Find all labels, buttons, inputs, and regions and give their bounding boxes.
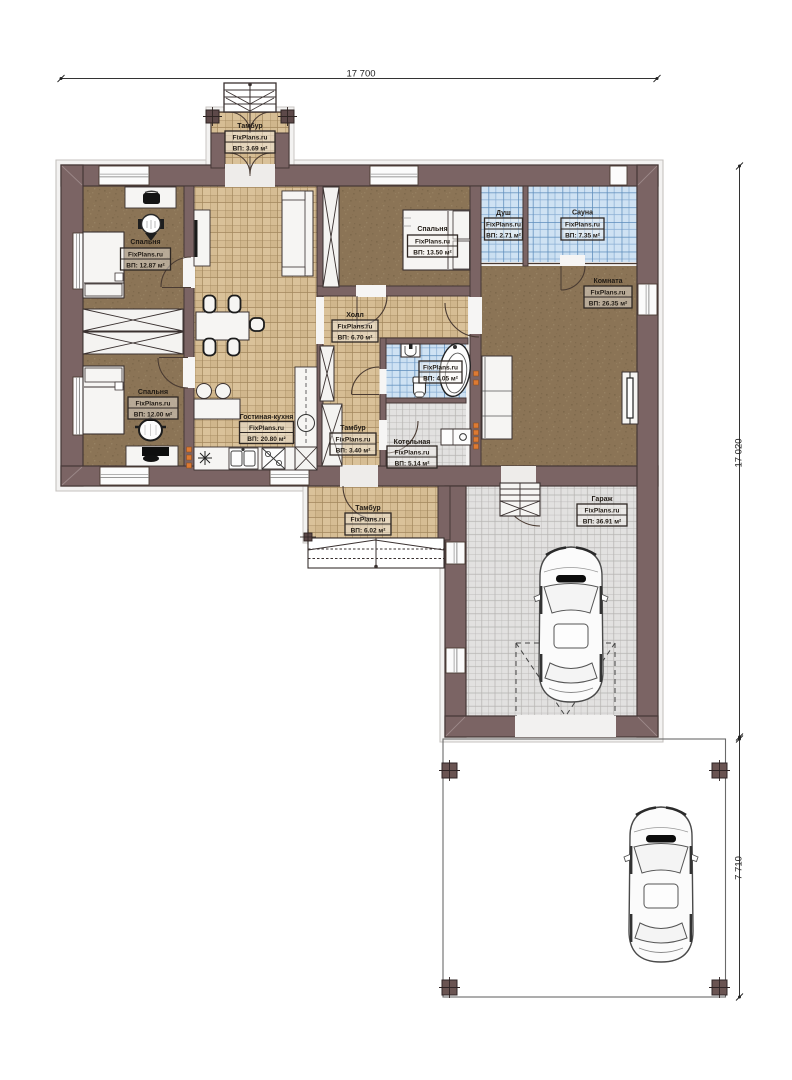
svg-text:ВП: 3.40 м²: ВП: 3.40 м²	[336, 448, 372, 455]
svg-text:Гостиная-кухня: Гостиная-кухня	[240, 414, 294, 421]
svg-text:Спальня: Спальня	[130, 239, 160, 246]
svg-text:ВП: 26.35 м²: ВП: 26.35 м²	[589, 301, 628, 308]
svg-text:Тамбур: Тамбур	[237, 122, 262, 130]
svg-text:ВП: 36.91 м²: ВП: 36.91 м²	[583, 519, 622, 526]
svg-text:FixPlans.ru: FixPlans.ru	[486, 222, 521, 229]
svg-text:Комната: Комната	[593, 278, 622, 285]
svg-text:FixPlans.ru: FixPlans.ru	[337, 324, 372, 331]
svg-text:Тамбур: Тамбур	[355, 504, 380, 512]
svg-text:ВП: 12.87 м²: ВП: 12.87 м²	[126, 263, 165, 270]
svg-text:FixPlans.ru: FixPlans.ru	[335, 437, 370, 444]
svg-text:FixPlans.ru: FixPlans.ru	[249, 425, 284, 432]
svg-text:ВП: 7.35 м²: ВП: 7.35 м²	[565, 233, 601, 240]
svg-text:ВП: 6.02 м²: ВП: 6.02 м²	[351, 528, 387, 535]
svg-text:ВП: 13.50 м²: ВП: 13.50 м²	[413, 250, 452, 257]
svg-text:ВП: 6.70 м²: ВП: 6.70 м²	[338, 335, 374, 342]
svg-text:Сауна: Сауна	[572, 210, 593, 217]
svg-text:17 020: 17 020	[734, 438, 745, 467]
svg-text:7 710: 7 710	[734, 856, 745, 880]
svg-text:Спальня: Спальня	[138, 389, 168, 396]
svg-text:ВП: 12.00 м²: ВП: 12.00 м²	[134, 412, 173, 419]
svg-text:ВП: 3.69 м²: ВП: 3.69 м²	[233, 146, 269, 153]
svg-text:FixPlans.ru: FixPlans.ru	[232, 135, 267, 142]
svg-text:ВП: 20.80 м²: ВП: 20.80 м²	[247, 436, 286, 443]
svg-text:Спальня: Спальня	[417, 226, 447, 233]
svg-text:FixPlans.ru: FixPlans.ru	[394, 450, 429, 457]
svg-text:FixPlans.ru: FixPlans.ru	[590, 290, 625, 297]
svg-text:FixPlans.ru: FixPlans.ru	[350, 517, 385, 524]
svg-text:Гараж: Гараж	[592, 496, 614, 503]
svg-text:Холл: Холл	[346, 312, 364, 319]
svg-text:ВП: 5.14 м²: ВП: 5.14 м²	[395, 461, 431, 468]
svg-text:FixPlans.ru: FixPlans.ru	[565, 222, 600, 229]
svg-text:FixPlans.ru: FixPlans.ru	[423, 365, 458, 372]
svg-text:Душ: Душ	[496, 210, 511, 217]
svg-text:FixPlans.ru: FixPlans.ru	[135, 401, 170, 408]
svg-text:FixPlans.ru: FixPlans.ru	[415, 239, 450, 246]
svg-text:FixPlans.ru: FixPlans.ru	[128, 252, 163, 259]
svg-text:Котельная: Котельная	[394, 439, 431, 446]
svg-text:FixPlans.ru: FixPlans.ru	[584, 508, 619, 515]
svg-text:17 700: 17 700	[346, 69, 375, 80]
svg-text:Тамбур: Тамбур	[340, 424, 365, 432]
svg-text:ВП: 2.71 м²: ВП: 2.71 м²	[486, 233, 522, 240]
svg-text:ВП: 4.05 м²: ВП: 4.05 м²	[423, 376, 459, 383]
